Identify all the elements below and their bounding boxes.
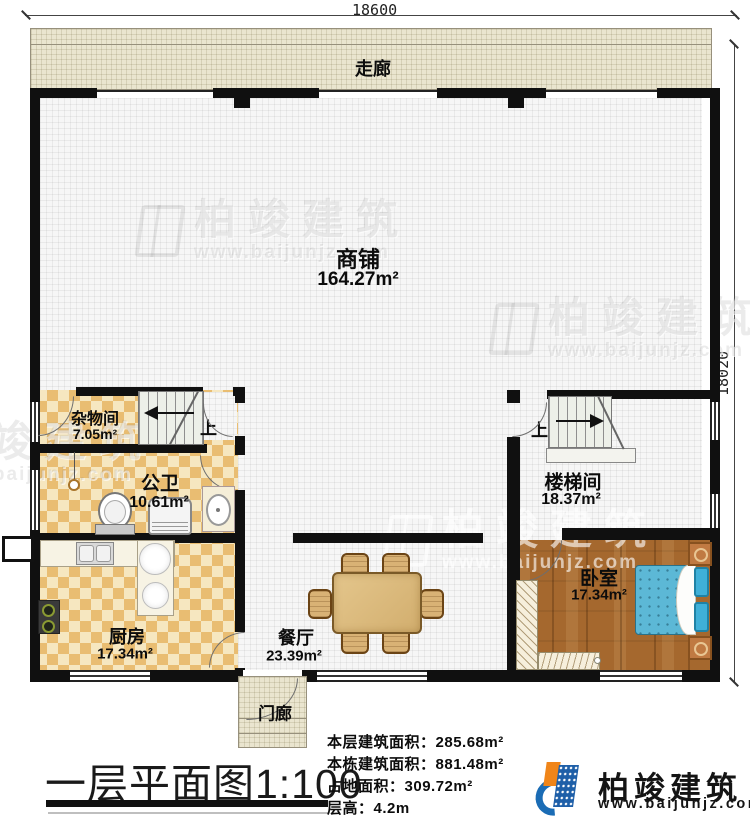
- room-area-kitchen: 17.34m²: [97, 646, 153, 663]
- toilet-tank: [95, 524, 135, 535]
- room-label-corridor: 走廊: [355, 55, 391, 81]
- dimension-line-right: [734, 44, 735, 682]
- stairs-arrow: [144, 406, 158, 420]
- wall-segment: [213, 88, 319, 98]
- wall-segment: [235, 387, 245, 403]
- window: [70, 670, 150, 682]
- stove-burner: [42, 620, 55, 633]
- chair-icon: [420, 589, 444, 619]
- chair-icon: [308, 589, 332, 619]
- room-area-storage: 7.05m²: [73, 426, 117, 442]
- dining-table-icon: [332, 572, 422, 634]
- info-footprint-area: 占地面积：309.72m²: [327, 775, 473, 796]
- wall-segment: [293, 533, 483, 543]
- nightstand-icon: [688, 542, 712, 566]
- wall-segment: [235, 490, 245, 632]
- wall-segment: [562, 528, 712, 540]
- room-area-stairwell: 18.37m²: [541, 491, 601, 509]
- stairs-direction-line: [556, 420, 592, 422]
- floor-plan-canvas: 18600 18020 走廊 柏竣建筑 www.baijunjz.com 柏竣建…: [0, 0, 750, 829]
- room-label-porch: 门廊: [258, 700, 292, 725]
- wardrobe-icon: [538, 652, 600, 670]
- kitchen-sink-basin: [79, 545, 94, 562]
- wall-pier: [508, 98, 524, 108]
- wardrobe-knob: [594, 657, 601, 664]
- kitchen-round-basin: [142, 582, 169, 609]
- room-area-dining: 23.39m²: [266, 648, 322, 665]
- room-area-bathroom: 10.61m²: [129, 494, 189, 512]
- stairs-direction-line: [156, 412, 194, 414]
- window: [710, 494, 720, 528]
- wall-segment: [507, 437, 520, 540]
- exterior-box: [2, 536, 34, 562]
- window: [600, 670, 682, 682]
- window: [317, 670, 427, 682]
- stairs-arrow: [590, 414, 604, 428]
- shower-line: [152, 526, 188, 527]
- info-floor-height: 层高：4.2m: [327, 797, 410, 818]
- wall-pier: [234, 98, 250, 108]
- wall-segment: [30, 444, 207, 453]
- brand-website: www.baijunjz.com: [598, 796, 750, 812]
- porch-step-line: [238, 733, 307, 734]
- wall-segment: [437, 88, 546, 98]
- toilet-seat: [104, 500, 126, 524]
- wall-segment: [507, 528, 520, 540]
- room-area-shop: 164.27m²: [317, 269, 398, 291]
- stove-burner: [42, 604, 55, 617]
- room-label-bathroom: 公卫: [141, 469, 179, 496]
- title-underline-shadow: [48, 812, 328, 814]
- dimension-top-value: 18600: [352, 1, 397, 19]
- shower-line: [152, 522, 188, 523]
- wall-segment: [30, 387, 38, 396]
- wardrobe-icon: [516, 580, 538, 670]
- info-building-area: 本栋建筑面积：881.48m²: [327, 753, 504, 774]
- sink-drain: [216, 508, 220, 512]
- nightstand-icon: [688, 636, 712, 660]
- room-area-bedroom: 17.34m²: [571, 587, 627, 604]
- kitchen-sink-basin: [96, 545, 111, 562]
- wall-right: [710, 88, 720, 680]
- shower-line: [152, 530, 188, 531]
- room-label-dining: 餐厅: [278, 624, 314, 650]
- wall-segment: [235, 436, 245, 455]
- lamp-icon: [68, 479, 80, 491]
- kitchen-round-basin: [139, 543, 171, 575]
- wall-left: [30, 88, 40, 680]
- info-floor-area: 本层建筑面积：285.68m²: [327, 731, 504, 752]
- pillow-icon: [694, 567, 709, 597]
- corridor-edge-line: [30, 44, 712, 45]
- brand-logo-icon: [536, 762, 594, 818]
- lamp-cord: [74, 452, 75, 480]
- wall-segment: [31, 88, 97, 98]
- window: [30, 470, 40, 530]
- bed-sheet-fold: [676, 565, 696, 635]
- pillow-icon: [694, 602, 709, 632]
- title-underline: [46, 800, 328, 807]
- stairs-landing: [546, 448, 636, 463]
- shopfront-glass-line: [97, 90, 657, 92]
- window: [710, 402, 720, 440]
